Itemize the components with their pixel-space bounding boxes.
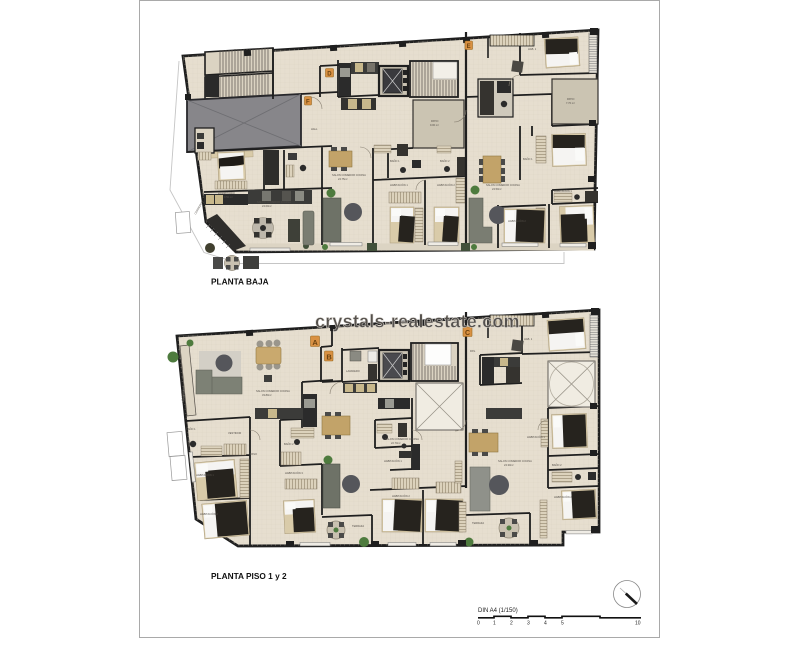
svg-text:1: 1 — [493, 621, 496, 627]
svg-text:E: E — [467, 44, 471, 50]
svg-text:24.75m²: 24.75m² — [338, 177, 348, 181]
svg-text:B: B — [326, 353, 332, 362]
svg-text:SALON COMEDOR COCINA: SALON COMEDOR COCINA — [257, 200, 291, 204]
svg-text:33.80m²: 33.80m² — [262, 393, 272, 397]
svg-text:PATIO: PATIO — [567, 97, 574, 101]
svg-text:2: 2 — [510, 621, 513, 627]
svg-text:PLANTA PISO 1 y 2: PLANTA PISO 1 y 2 — [211, 571, 287, 581]
svg-text:LAVADERO: LAVADERO — [346, 369, 360, 373]
svg-text:PLANTA BAJA: PLANTA BAJA — [211, 277, 269, 287]
svg-text:10: 10 — [635, 621, 641, 627]
svg-text:22.70m²: 22.70m² — [391, 441, 401, 445]
svg-text:24.30m²: 24.30m² — [504, 463, 514, 467]
svg-text:TERRAZA: TERRAZA — [352, 524, 364, 528]
svg-text:3: 3 — [527, 621, 530, 627]
svg-text:SALON COMEDOR COCINA: SALON COMEDOR COCINA — [486, 183, 520, 187]
svg-text:SALON COMEDOR COCINA: SALON COMEDOR COCINA — [332, 173, 366, 177]
svg-text:PAS.: PAS. — [470, 349, 476, 353]
svg-text:24.00m²: 24.00m² — [262, 204, 272, 208]
svg-text:5: 5 — [561, 621, 564, 627]
svg-text:D: D — [327, 72, 332, 78]
svg-text:4: 4 — [544, 621, 547, 627]
svg-text:0: 0 — [477, 621, 480, 627]
svg-text:9.50 m²: 9.50 m² — [224, 195, 233, 199]
svg-text:24.50m²: 24.50m² — [492, 187, 502, 191]
svg-text:VEST.: VEST. — [354, 71, 361, 75]
svg-text:SALON COMEDOR COCINA: SALON COMEDOR COCINA — [498, 459, 532, 463]
svg-text:SALON COMEDOR COCINA: SALON COMEDOR COCINA — [385, 437, 419, 441]
svg-text:DORMITORIO: DORMITORIO — [218, 191, 235, 195]
svg-text:VESTIDOR: VESTIDOR — [228, 431, 241, 435]
svg-text:TERRAZA: TERRAZA — [472, 521, 484, 525]
svg-text:PASO: PASO — [250, 452, 257, 456]
svg-text:HAB. 1: HAB. 1 — [524, 337, 533, 341]
svg-text:9.00 m²: 9.00 m² — [430, 123, 439, 127]
svg-text:HALL: HALL — [311, 127, 318, 131]
svg-text:SALON COMEDOR COCINA: SALON COMEDOR COCINA — [256, 389, 290, 393]
svg-text:7.70 m²: 7.70 m² — [566, 101, 575, 105]
svg-text:PATIO: PATIO — [431, 119, 438, 123]
svg-text:F: F — [306, 100, 310, 106]
svg-text:DIN A4 (1/150): DIN A4 (1/150) — [478, 608, 518, 614]
svg-text:A: A — [312, 338, 318, 347]
svg-text:HAB. 1: HAB. 1 — [528, 47, 537, 51]
svg-text:crystals-realestate.com: crystals-realestate.com — [315, 312, 520, 332]
